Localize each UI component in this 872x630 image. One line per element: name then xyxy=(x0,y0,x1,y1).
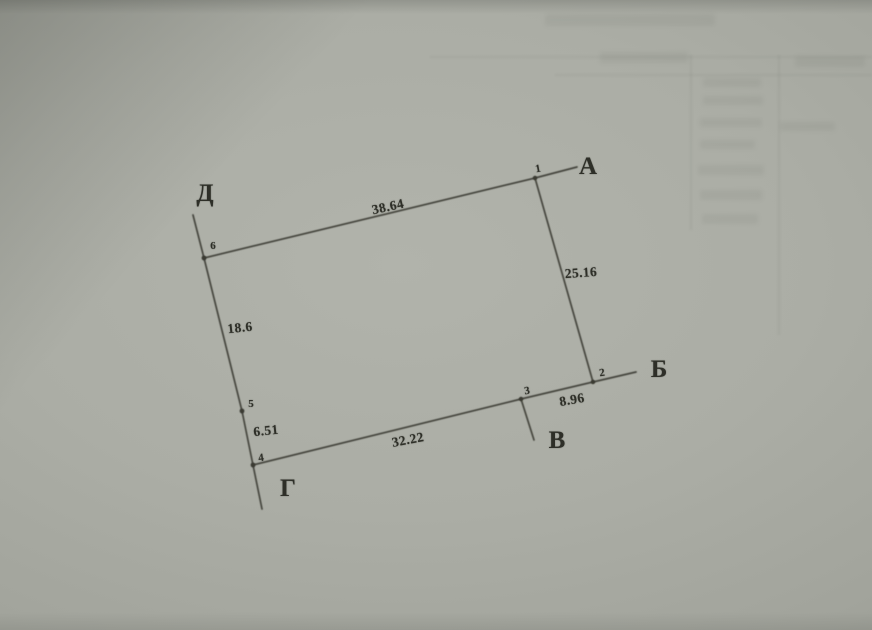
paper-photo: 38.64 25.16 8.96 32.22 6.51 18.6 1 2 3 4… xyxy=(0,0,872,630)
vertex-label-1: 1 xyxy=(534,163,542,176)
vertex-dot-5 xyxy=(240,409,245,414)
vertex-dot-6 xyxy=(202,256,207,261)
direction-label-a: А xyxy=(579,153,597,181)
direction-label-g: Г xyxy=(280,475,296,503)
vertex-label-3: 3 xyxy=(523,385,530,398)
vertex-dot-3 xyxy=(519,397,523,401)
ray-to-g xyxy=(253,465,262,509)
vertex-dot-1 xyxy=(533,176,537,180)
direction-label-v: В xyxy=(549,427,566,455)
direction-label-d: Д xyxy=(196,180,213,208)
vertex-dot-4 xyxy=(251,463,256,468)
ray-to-v xyxy=(521,399,534,440)
direction-label-b: Б xyxy=(651,356,668,384)
vertex-label-4: 4 xyxy=(257,452,264,465)
side-length-1-2: 25.16 xyxy=(564,264,597,282)
ray-to-d xyxy=(193,215,204,258)
side-length-4-5: 6.51 xyxy=(253,422,280,441)
vertex-dot-2 xyxy=(591,380,595,384)
plot-boundary-polygon xyxy=(204,178,593,465)
vertex-label-2: 2 xyxy=(598,367,605,380)
plot-sketch-canvas xyxy=(0,0,872,630)
vertex-label-6: 6 xyxy=(210,240,216,252)
side-length-5-6: 18.6 xyxy=(227,319,254,338)
vertex-label-5: 5 xyxy=(248,398,254,410)
